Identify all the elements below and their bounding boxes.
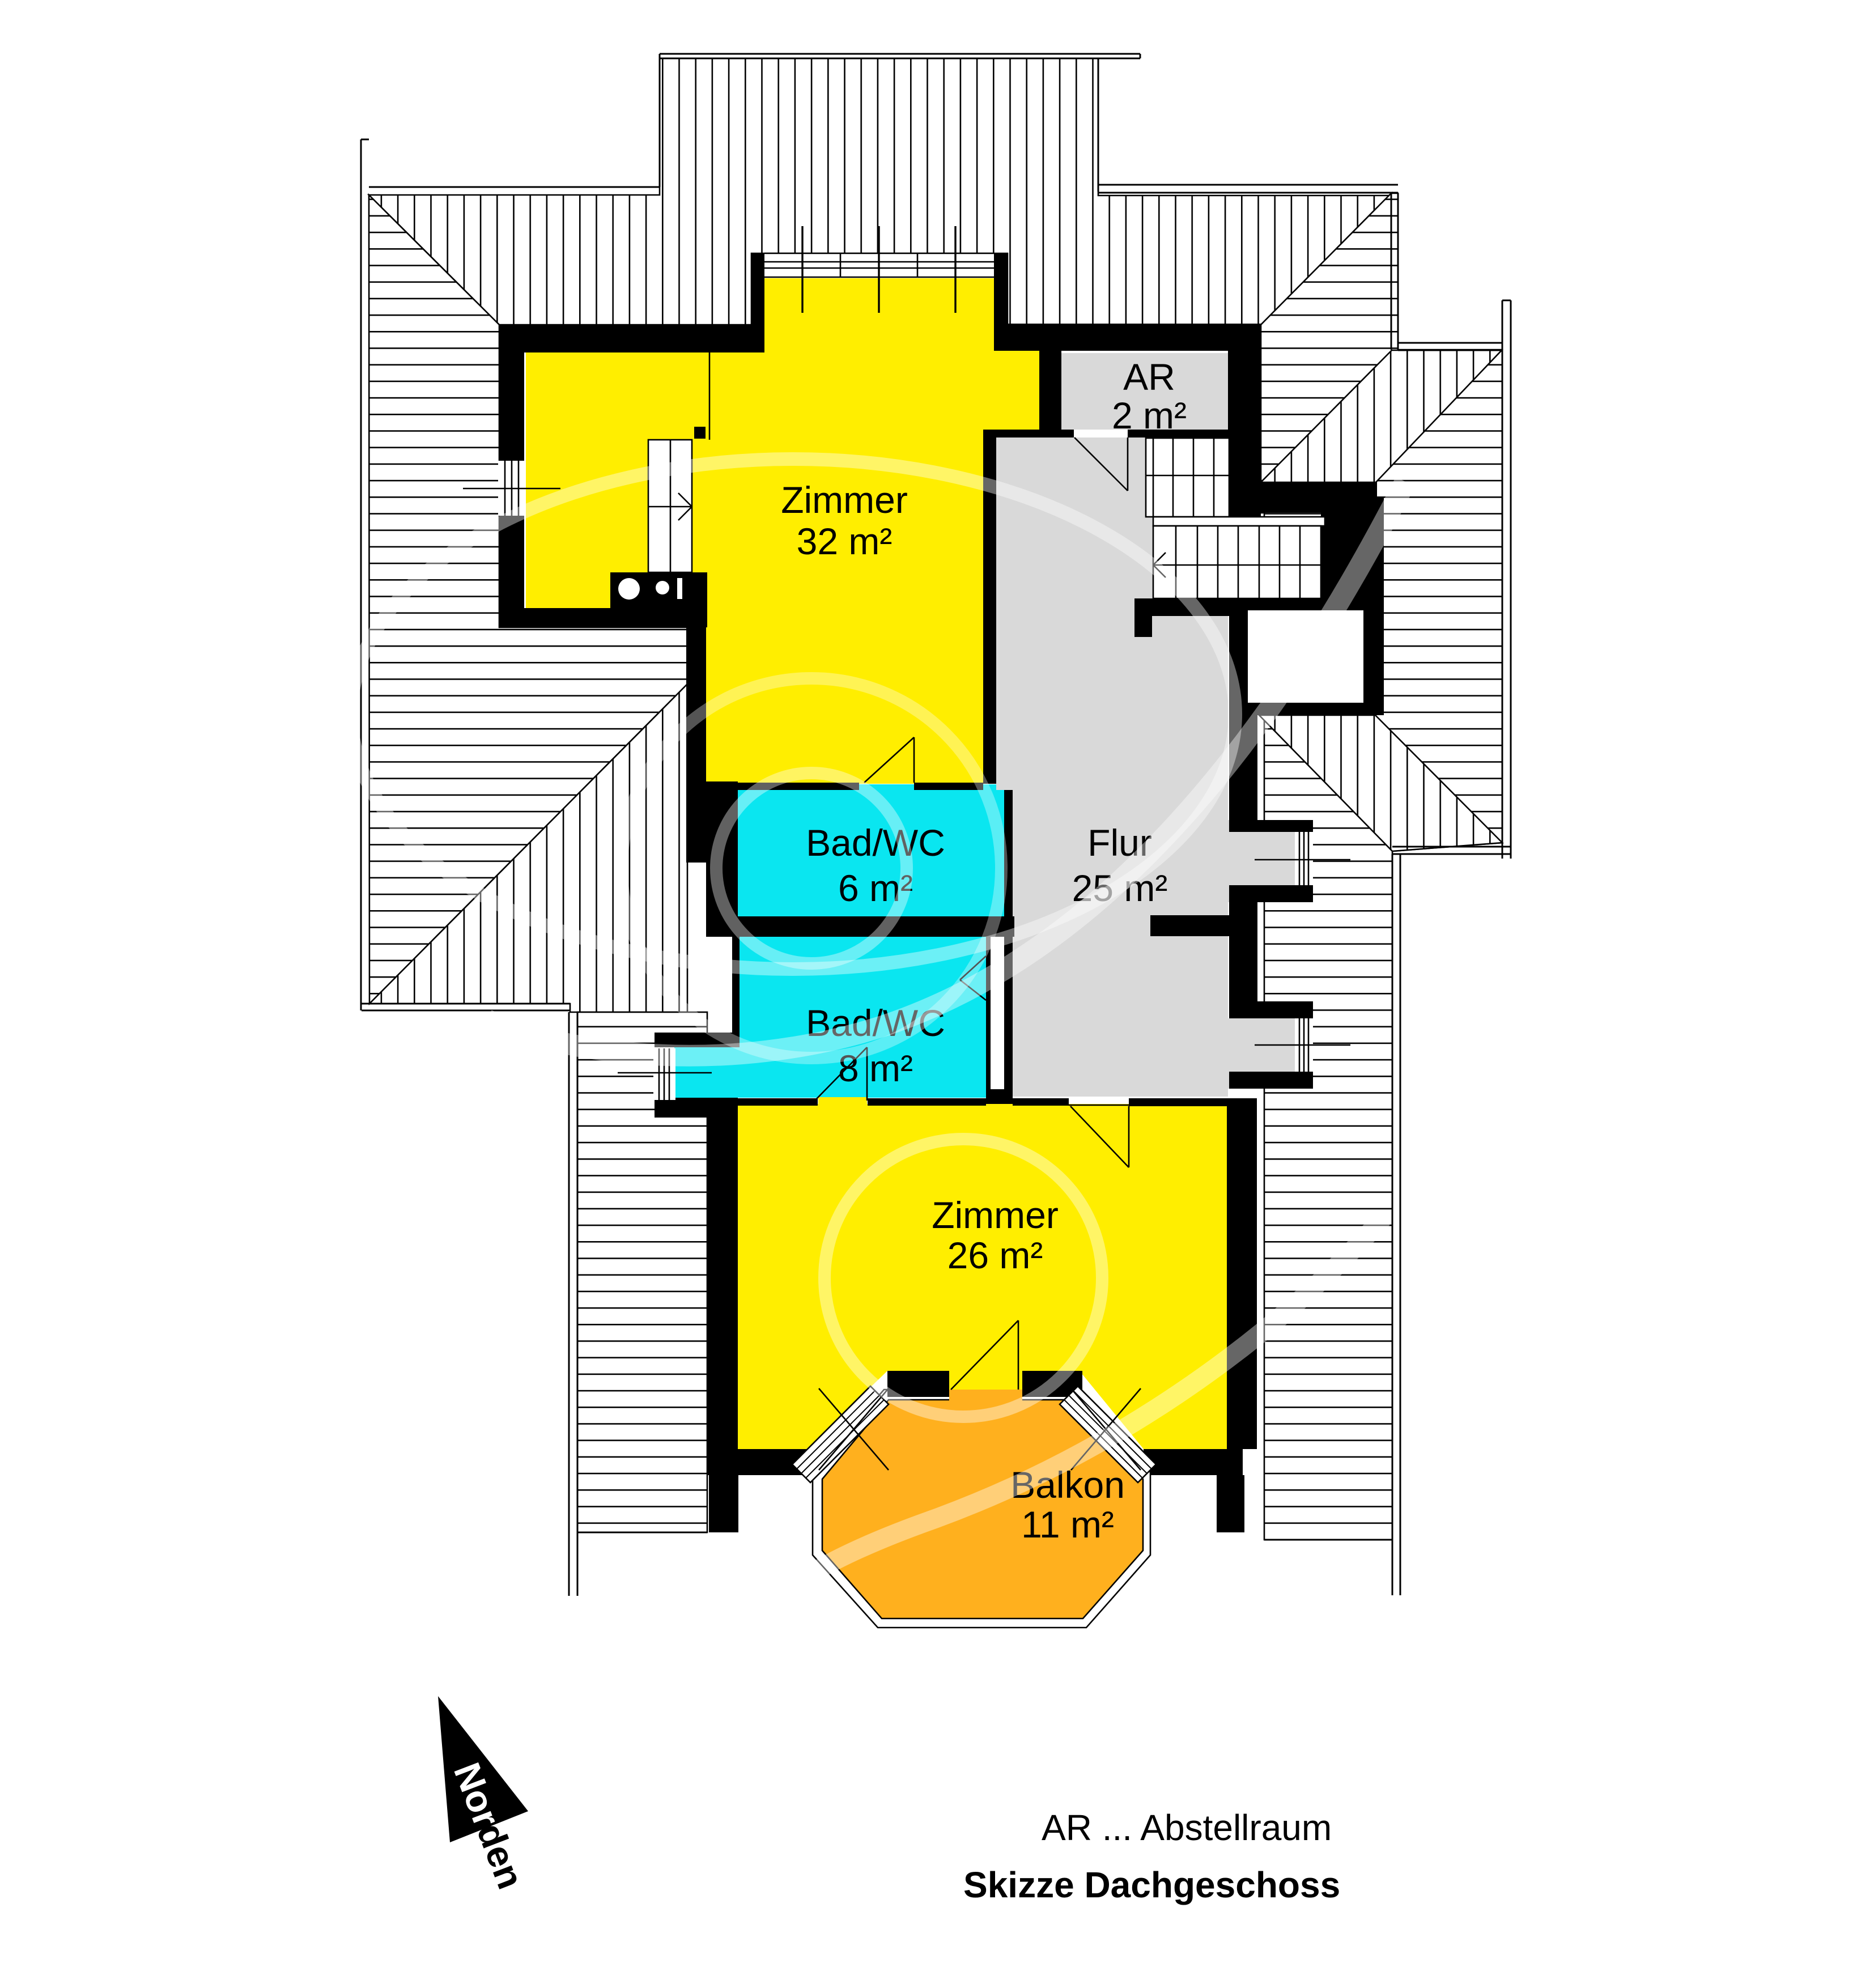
svg-text:AR ... Abstellraum: AR ... Abstellraum <box>1042 1807 1332 1848</box>
svg-text:32 m²: 32 m² <box>797 520 893 562</box>
svg-text:Skizze Dachgeschoss: Skizze Dachgeschoss <box>963 1864 1340 1905</box>
svg-text:Zimmer: Zimmer <box>932 1194 1059 1236</box>
svg-text:Bad/WC: Bad/WC <box>806 822 945 864</box>
svg-text:AR: AR <box>1123 356 1175 398</box>
svg-text:2 m²: 2 m² <box>1112 394 1187 436</box>
svg-text:26 m²: 26 m² <box>947 1234 1043 1276</box>
svg-text:11 m²: 11 m² <box>1021 1503 1114 1545</box>
svg-text:Zimmer: Zimmer <box>781 479 908 521</box>
